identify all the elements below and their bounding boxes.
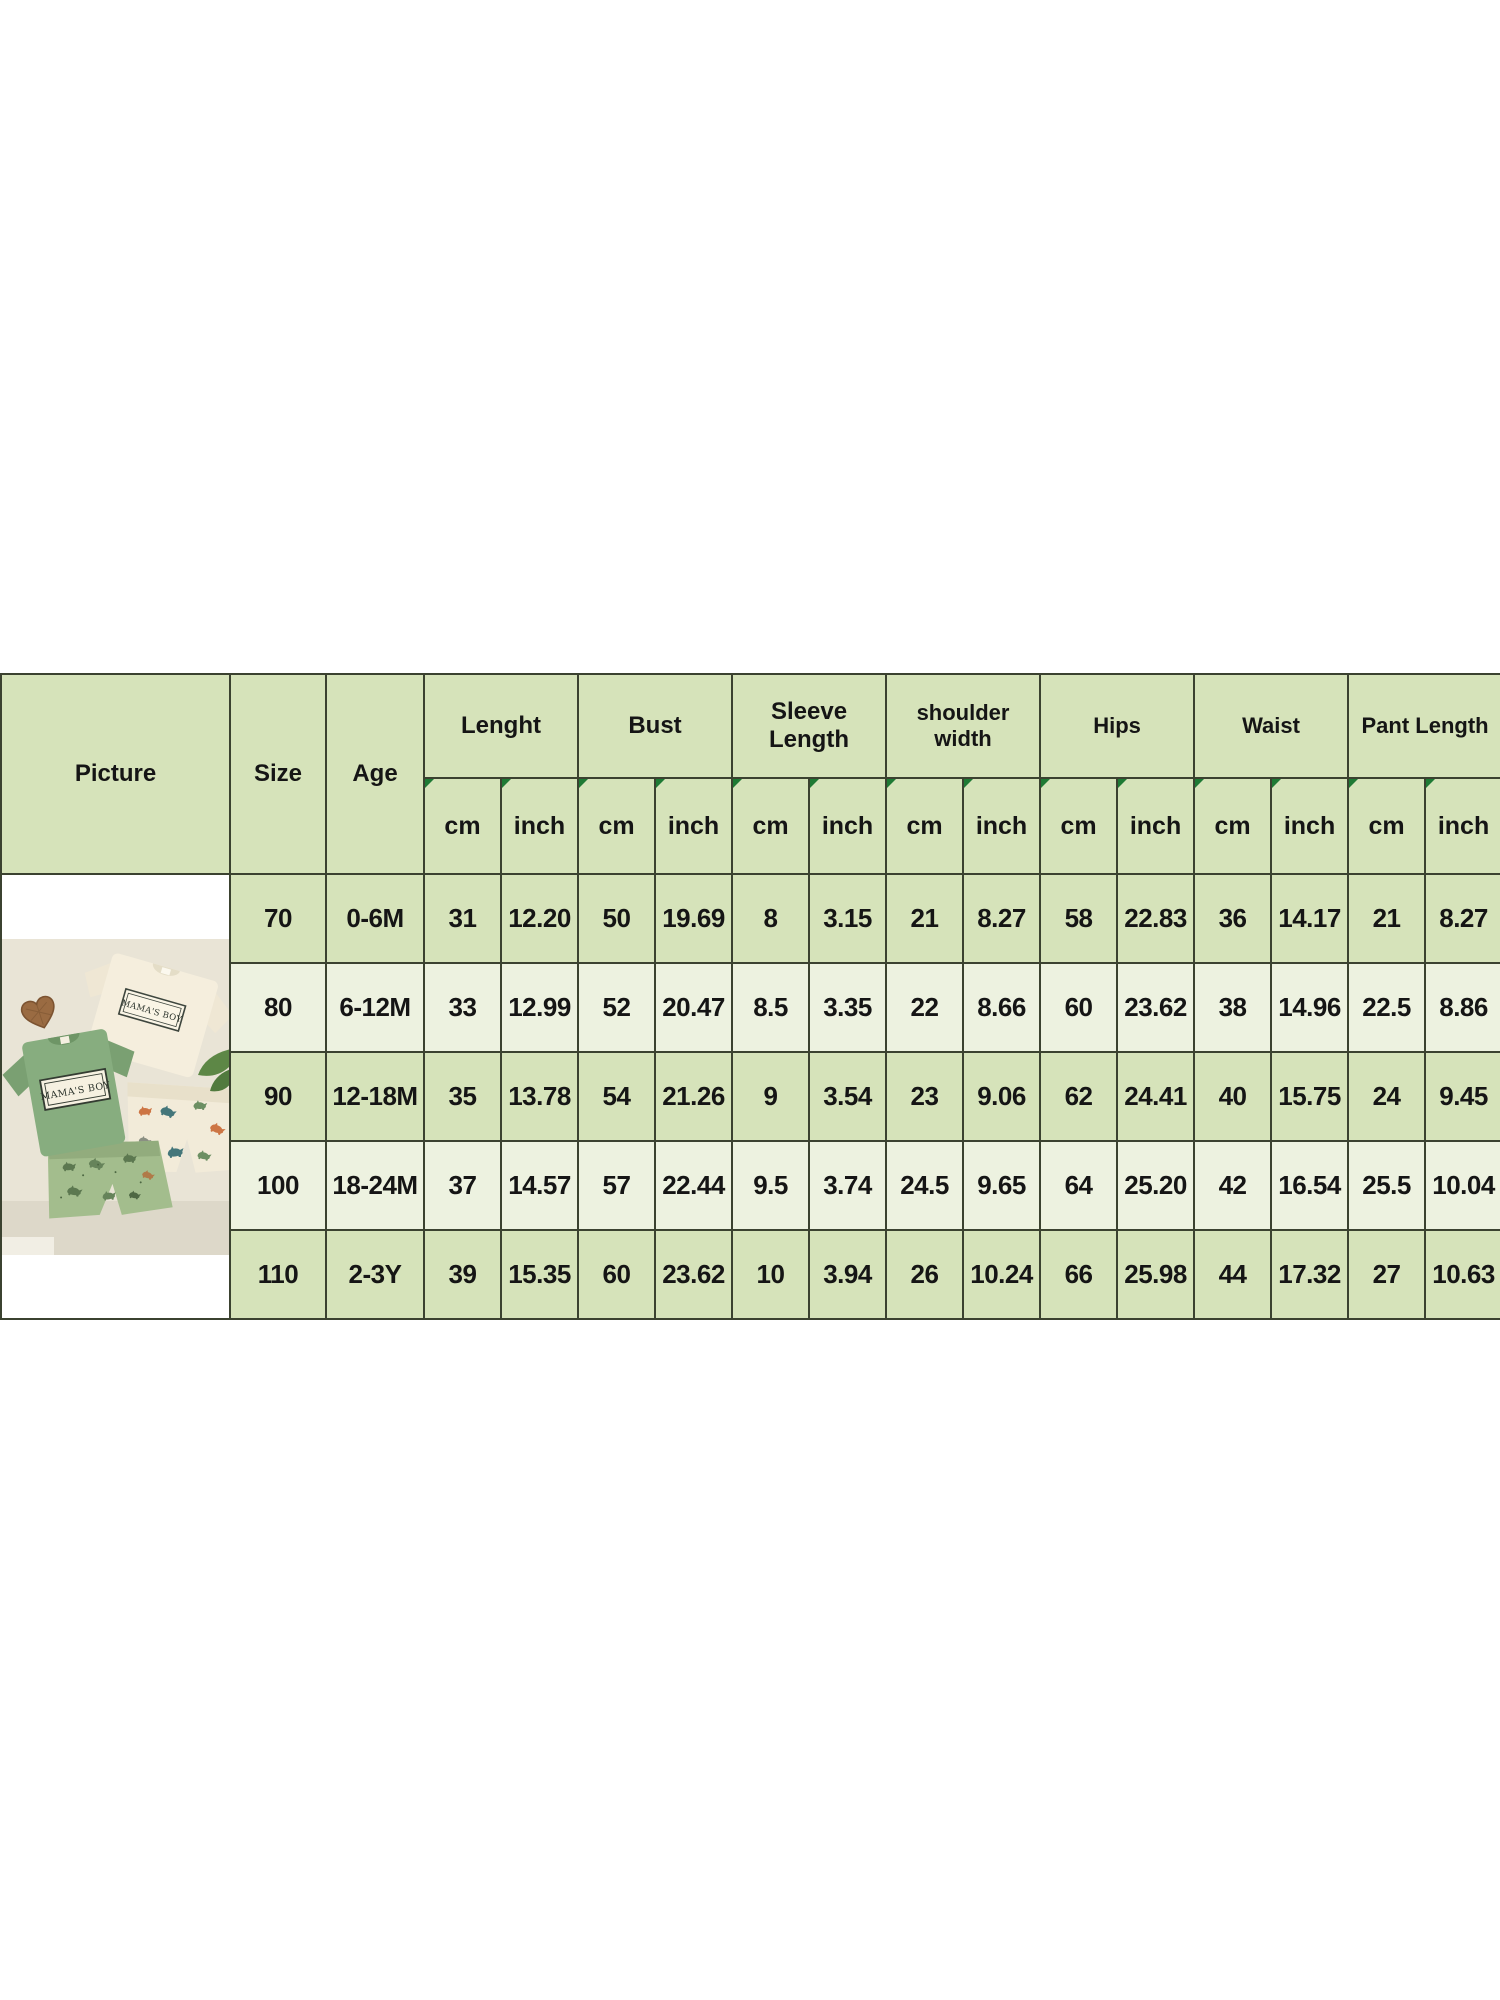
- measurement-cell: 40: [1194, 1052, 1271, 1141]
- measurement-cell: 8: [732, 874, 809, 963]
- unit-header-cm: cm: [578, 778, 655, 874]
- measurement-cell: 3.74: [809, 1141, 886, 1230]
- measurement-cell: 16.54: [1271, 1141, 1348, 1230]
- measurement-cell: 24.41: [1117, 1052, 1194, 1141]
- measurement-cell: 42: [1194, 1141, 1271, 1230]
- group-header-shoulder-width: shoulder width: [886, 674, 1040, 778]
- unit-header-cm: cm: [732, 778, 809, 874]
- measurement-cell: 9.5: [732, 1141, 809, 1230]
- group-header-sleeve-length: Sleeve Length: [732, 674, 886, 778]
- measurement-cell: 38: [1194, 963, 1271, 1052]
- unit-header-inch: inch: [501, 778, 578, 874]
- measurement-cell: 31: [424, 874, 501, 963]
- col-header-age: Age: [326, 674, 424, 874]
- measurement-cell: 19.69: [655, 874, 732, 963]
- measurement-cell: 66: [1040, 1230, 1117, 1319]
- measurement-cell: 54: [578, 1052, 655, 1141]
- measurement-cell: 8.27: [963, 874, 1040, 963]
- measurement-cell: 15.35: [501, 1230, 578, 1319]
- measurement-cell: 24: [1348, 1052, 1425, 1141]
- measurement-cell: 10.24: [963, 1230, 1040, 1319]
- age-cell: 6-12M: [326, 963, 424, 1052]
- unit-header-inch: inch: [1117, 778, 1194, 874]
- size-chart-table: Picture Size Age Lenght Bust Sleeve Leng…: [0, 673, 1500, 1320]
- measurement-cell: 25.5: [1348, 1141, 1425, 1230]
- measurement-cell: 14.17: [1271, 874, 1348, 963]
- measurement-cell: 21: [1348, 874, 1425, 963]
- measurement-cell: 8.66: [963, 963, 1040, 1052]
- measurement-cell: 57: [578, 1141, 655, 1230]
- unit-header-cm: cm: [1348, 778, 1425, 874]
- measurement-cell: 62: [1040, 1052, 1117, 1141]
- measurement-cell: 23.62: [655, 1230, 732, 1319]
- measurement-cell: 23.62: [1117, 963, 1194, 1052]
- measurement-cell: 24.5: [886, 1141, 963, 1230]
- measurement-cell: 3.15: [809, 874, 886, 963]
- measurement-cell: 20.47: [655, 963, 732, 1052]
- measurement-cell: 10: [732, 1230, 809, 1319]
- measurement-cell: 37: [424, 1141, 501, 1230]
- measurement-cell: 9.06: [963, 1052, 1040, 1141]
- measurement-cell: 22: [886, 963, 963, 1052]
- age-cell: 18-24M: [326, 1141, 424, 1230]
- picture-cell: MAMA'S BOY: [1, 874, 230, 1319]
- header-row-groups: Picture Size Age Lenght Bust Sleeve Leng…: [1, 674, 1500, 778]
- measurement-cell: 3.54: [809, 1052, 886, 1141]
- measurement-cell: 22.44: [655, 1141, 732, 1230]
- group-header-bust: Bust: [578, 674, 732, 778]
- unit-header-cm: cm: [1194, 778, 1271, 874]
- measurement-cell: 8.86: [1425, 963, 1500, 1052]
- measurement-cell: 3.94: [809, 1230, 886, 1319]
- unit-header-inch: inch: [963, 778, 1040, 874]
- measurement-cell: 22.83: [1117, 874, 1194, 963]
- measurement-cell: 39: [424, 1230, 501, 1319]
- measurement-cell: 13.78: [501, 1052, 578, 1141]
- age-cell: 2-3Y: [326, 1230, 424, 1319]
- measurement-cell: 21: [886, 874, 963, 963]
- unit-header-inch: inch: [1271, 778, 1348, 874]
- measurement-cell: 15.75: [1271, 1052, 1348, 1141]
- measurement-cell: 33: [424, 963, 501, 1052]
- group-header-waist: Waist: [1194, 674, 1348, 778]
- age-cell: 12-18M: [326, 1052, 424, 1141]
- col-header-picture: Picture: [1, 674, 230, 874]
- group-header-length: Lenght: [424, 674, 578, 778]
- group-header-hips: Hips: [1040, 674, 1194, 778]
- measurement-cell: 23: [886, 1052, 963, 1141]
- size-cell: 90: [230, 1052, 326, 1141]
- size-cell: 110: [230, 1230, 326, 1319]
- measurement-cell: 8.5: [732, 963, 809, 1052]
- measurement-cell: 3.35: [809, 963, 886, 1052]
- measurement-cell: 60: [1040, 963, 1117, 1052]
- measurement-cell: 17.32: [1271, 1230, 1348, 1319]
- measurement-cell: 60: [578, 1230, 655, 1319]
- measurement-cell: 9: [732, 1052, 809, 1141]
- size-cell: 100: [230, 1141, 326, 1230]
- measurement-cell: 50: [578, 874, 655, 963]
- measurement-cell: 10.63: [1425, 1230, 1500, 1319]
- unit-header-cm: cm: [886, 778, 963, 874]
- measurement-cell: 25.20: [1117, 1141, 1194, 1230]
- measurement-cell: 14.57: [501, 1141, 578, 1230]
- measurement-cell: 36: [1194, 874, 1271, 963]
- group-header-pant-length: Pant Length: [1348, 674, 1500, 778]
- size-cell: 80: [230, 963, 326, 1052]
- measurement-cell: 52: [578, 963, 655, 1052]
- unit-header-inch: inch: [1425, 778, 1500, 874]
- unit-header-cm: cm: [424, 778, 501, 874]
- product-photo: MAMA'S BOY: [2, 939, 230, 1255]
- measurement-cell: 9.65: [963, 1141, 1040, 1230]
- measurement-cell: 10.04: [1425, 1141, 1500, 1230]
- unit-header-inch: inch: [655, 778, 732, 874]
- measurement-cell: 22.5: [1348, 963, 1425, 1052]
- age-cell: 0-6M: [326, 874, 424, 963]
- measurement-cell: 25.98: [1117, 1230, 1194, 1319]
- unit-header-cm: cm: [1040, 778, 1117, 874]
- measurement-cell: 8.27: [1425, 874, 1500, 963]
- size-cell: 70: [230, 874, 326, 963]
- col-header-size: Size: [230, 674, 326, 874]
- measurement-cell: 12.20: [501, 874, 578, 963]
- measurement-cell: 12.99: [501, 963, 578, 1052]
- measurement-cell: 14.96: [1271, 963, 1348, 1052]
- unit-header-inch: inch: [809, 778, 886, 874]
- measurement-cell: 9.45: [1425, 1052, 1500, 1141]
- measurement-cell: 26: [886, 1230, 963, 1319]
- measurement-cell: 35: [424, 1052, 501, 1141]
- table-row: MAMA'S BOY: [1, 874, 1500, 963]
- measurement-cell: 27: [1348, 1230, 1425, 1319]
- measurement-cell: 44: [1194, 1230, 1271, 1319]
- measurement-cell: 64: [1040, 1141, 1117, 1230]
- measurement-cell: 58: [1040, 874, 1117, 963]
- measurement-cell: 21.26: [655, 1052, 732, 1141]
